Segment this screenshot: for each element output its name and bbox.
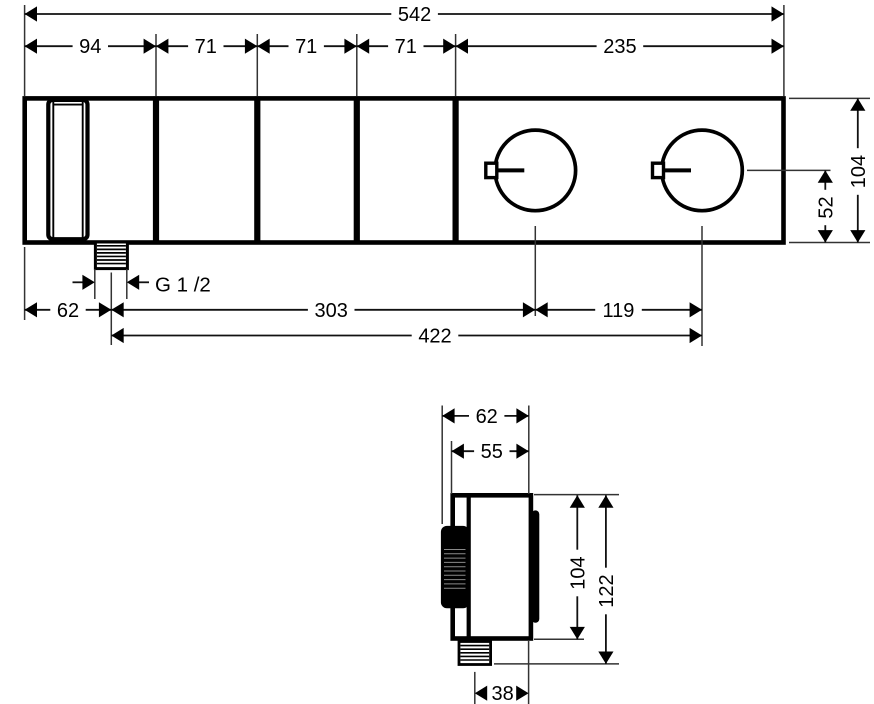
svg-text:235: 235 — [603, 36, 636, 58]
svg-text:303: 303 — [315, 300, 348, 322]
svg-text:94: 94 — [79, 36, 101, 58]
svg-text:G 1 /2: G 1 /2 — [155, 274, 211, 297]
svg-text:52: 52 — [815, 196, 837, 218]
svg-text:104: 104 — [848, 155, 870, 188]
svg-text:119: 119 — [603, 300, 635, 322]
svg-text:71: 71 — [295, 36, 317, 58]
svg-text:122: 122 — [596, 574, 618, 607]
svg-text:71: 71 — [395, 36, 417, 58]
svg-text:71: 71 — [195, 36, 217, 58]
svg-text:542: 542 — [398, 4, 431, 26]
svg-text:422: 422 — [418, 326, 451, 348]
svg-text:38: 38 — [491, 683, 513, 704]
svg-text:104: 104 — [567, 556, 589, 589]
svg-text:62: 62 — [57, 300, 79, 322]
svg-text:62: 62 — [476, 406, 498, 428]
svg-text:55: 55 — [481, 441, 503, 463]
